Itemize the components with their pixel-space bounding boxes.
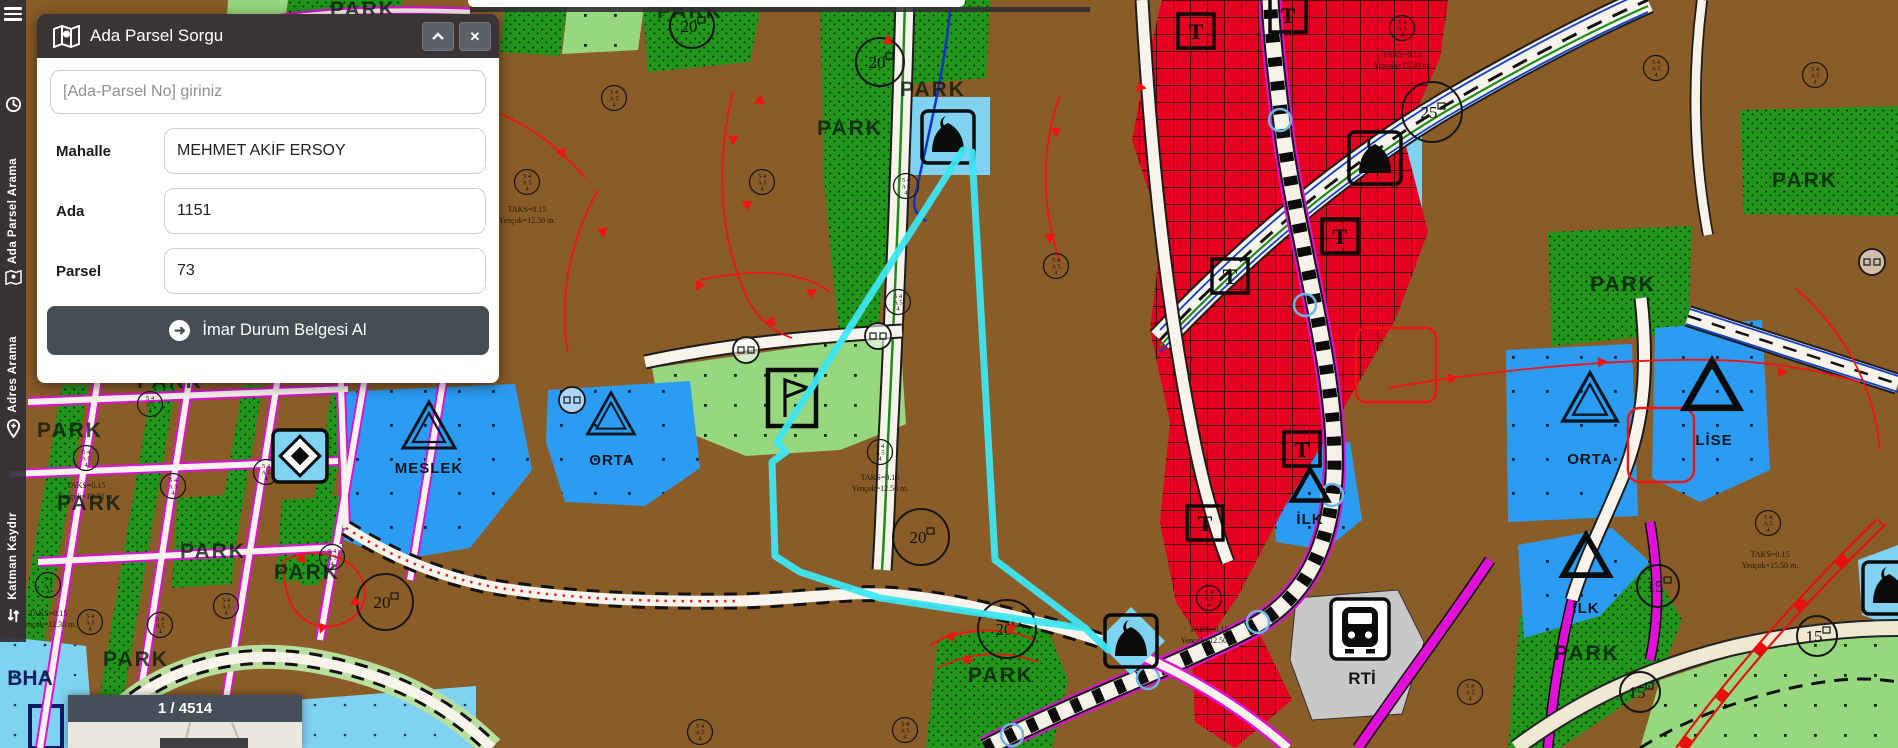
svg-text:TAKS=0.15: TAKS=0.15	[861, 473, 900, 482]
area-label-park: PARK	[274, 561, 340, 584]
history-icon	[4, 95, 23, 119]
svg-text:TAKS=0.15: TAKS=0.15	[1751, 550, 1790, 559]
svg-text:Yençok=12.50 m.: Yençok=12.50 m.	[852, 484, 909, 493]
pager-header[interactable]: 1 / 4514	[68, 695, 302, 722]
panel-title: Ada Parsel Sorgu	[90, 26, 417, 46]
area-label-meslek: MESLEK	[395, 460, 464, 477]
location-pin-icon	[6, 419, 21, 443]
plan-sheet-preview[interactable]	[68, 722, 302, 748]
panel-header: Ada Parsel Sorgu ✕	[37, 14, 499, 58]
svg-text:TAKS=0.15: TAKS=0.15	[1383, 50, 1422, 59]
svg-text:T: T	[1189, 19, 1204, 44]
area-label-park: PARK	[103, 648, 169, 671]
svg-text:T: T	[1295, 437, 1310, 462]
submit-button-label: İmar Durum Belgesi Al	[202, 321, 366, 340]
pager-label: 1 / 4514	[158, 700, 212, 717]
area-label-i̇lk: İLK	[1572, 600, 1599, 617]
sidebar-item-label: Ada Parsel Arama	[7, 158, 19, 264]
preview-highlight	[160, 738, 248, 748]
area-label-rti̇: RTİ	[1348, 669, 1375, 688]
area-label-park: PARK	[1772, 169, 1838, 192]
parsel-label: Parsel	[50, 263, 164, 280]
area-label-orta: ORTA	[589, 452, 634, 469]
top-bar-shadow	[470, 7, 1090, 12]
area-label-li̇se: LİSE	[1695, 432, 1732, 449]
road-mini-circle	[1859, 249, 1885, 275]
area-label-park: PARK	[37, 419, 103, 442]
svg-text:TAKS=0.15: TAKS=0.15	[29, 609, 68, 618]
arrow-right-circle-icon: ➜	[169, 320, 190, 341]
map-icon	[53, 25, 80, 48]
field-row-mahalle: Mahalle	[50, 128, 486, 174]
app-window: 5 4A 545 4A 545 4A 545 4A 545 4A 545 4A …	[0, 0, 1898, 748]
svg-text:Yençok=12.50 m.: Yençok=12.50 m.	[1181, 636, 1238, 645]
area-label-i̇lk: İLK	[1296, 511, 1323, 528]
sidebar-item-history-icon[interactable]	[0, 95, 26, 119]
diamond-icon	[273, 430, 327, 482]
svg-text:TAKS=0.15: TAKS=0.15	[508, 205, 547, 214]
svg-text:Yençok=12.30 m.: Yençok=12.30 m.	[20, 620, 77, 629]
svg-text:15: 15	[1647, 577, 1664, 596]
svg-text:T: T	[1281, 3, 1296, 28]
area-label-park: PARK	[968, 664, 1034, 687]
ada-label: Ada	[50, 203, 164, 220]
svg-text:TAKS=0.15: TAKS=0.15	[67, 481, 106, 490]
plan-sheet-pager: 1 / 4514	[68, 695, 302, 748]
sidebar-item-label: Katman Kaydır	[7, 512, 19, 600]
sidebar-item-adres-arama[interactable]: Adres Arama	[0, 336, 26, 443]
tool-sidebar: Ada Parsel AramaAdres AramaKatman Kaydır	[0, 0, 26, 642]
collapse-button[interactable]	[422, 22, 454, 51]
ada-parsel-no-input[interactable]	[50, 70, 486, 114]
area-label-park: PARK	[180, 540, 246, 563]
area-label-orta: ORTA	[1567, 451, 1612, 468]
svg-text:T: T	[1223, 264, 1238, 289]
field-row-ada: Ada	[50, 188, 486, 234]
svg-text:Yençok=15.30 m.: Yençok=15.30 m.	[1374, 61, 1431, 70]
ada-parsel-query-panel: Ada Parsel Sorgu ✕ Mahalle Ada Parsel ➜ …	[37, 14, 499, 383]
area-label-bha: BHA	[7, 667, 53, 690]
sidebar-item-ada-parsel-arama[interactable]: Ada Parsel Arama	[0, 158, 26, 290]
svg-text:20: 20	[374, 593, 391, 612]
menu-hamburger-icon[interactable]	[4, 7, 22, 23]
svg-text:TAKS=0.15: TAKS=0.15	[1190, 625, 1229, 634]
svg-text:20: 20	[869, 53, 886, 72]
layers-swap-icon	[6, 606, 21, 630]
train-station-icon	[1331, 599, 1389, 659]
road-mini-circle	[733, 337, 759, 363]
area-label-park: PARK	[817, 117, 883, 140]
sidebar-item-katman-kayd-r[interactable]: Katman Kaydır	[0, 512, 26, 630]
mahalle-input[interactable]	[164, 128, 486, 174]
mahalle-label: Mahalle	[50, 143, 164, 160]
chevron-up-icon	[432, 32, 444, 40]
svg-text:T: T	[1333, 224, 1348, 249]
top-collapsed-bar[interactable]	[468, 0, 965, 7]
svg-text:15: 15	[1629, 683, 1646, 702]
close-button[interactable]: ✕	[459, 22, 491, 51]
svg-text:Yençok=12.50 m.: Yençok=12.50 m.	[499, 216, 556, 225]
area-label-park: PARK	[1554, 642, 1620, 665]
svg-text:20: 20	[910, 528, 927, 547]
parsel-input[interactable]	[164, 248, 486, 294]
field-row-parsel: Parsel	[50, 248, 486, 294]
imar-durum-belgesi-al-button[interactable]: ➜ İmar Durum Belgesi Al	[47, 306, 489, 355]
road-mini-circle	[559, 387, 585, 413]
sidebar-item-label: Adres Arama	[7, 336, 19, 413]
svg-text:25: 25	[1421, 103, 1438, 122]
road-mini-circle	[865, 323, 891, 349]
area-label-park: PARK	[57, 492, 123, 515]
svg-text:Yençok=15.50 m.: Yençok=15.50 m.	[1742, 561, 1799, 570]
map-search-icon	[5, 270, 22, 290]
ada-input[interactable]	[164, 188, 486, 234]
svg-text:15: 15	[1806, 627, 1823, 646]
area-label-park: PARK	[1590, 273, 1656, 296]
svg-text:T: T	[1198, 511, 1213, 536]
area-label-park: PARK	[900, 78, 966, 101]
